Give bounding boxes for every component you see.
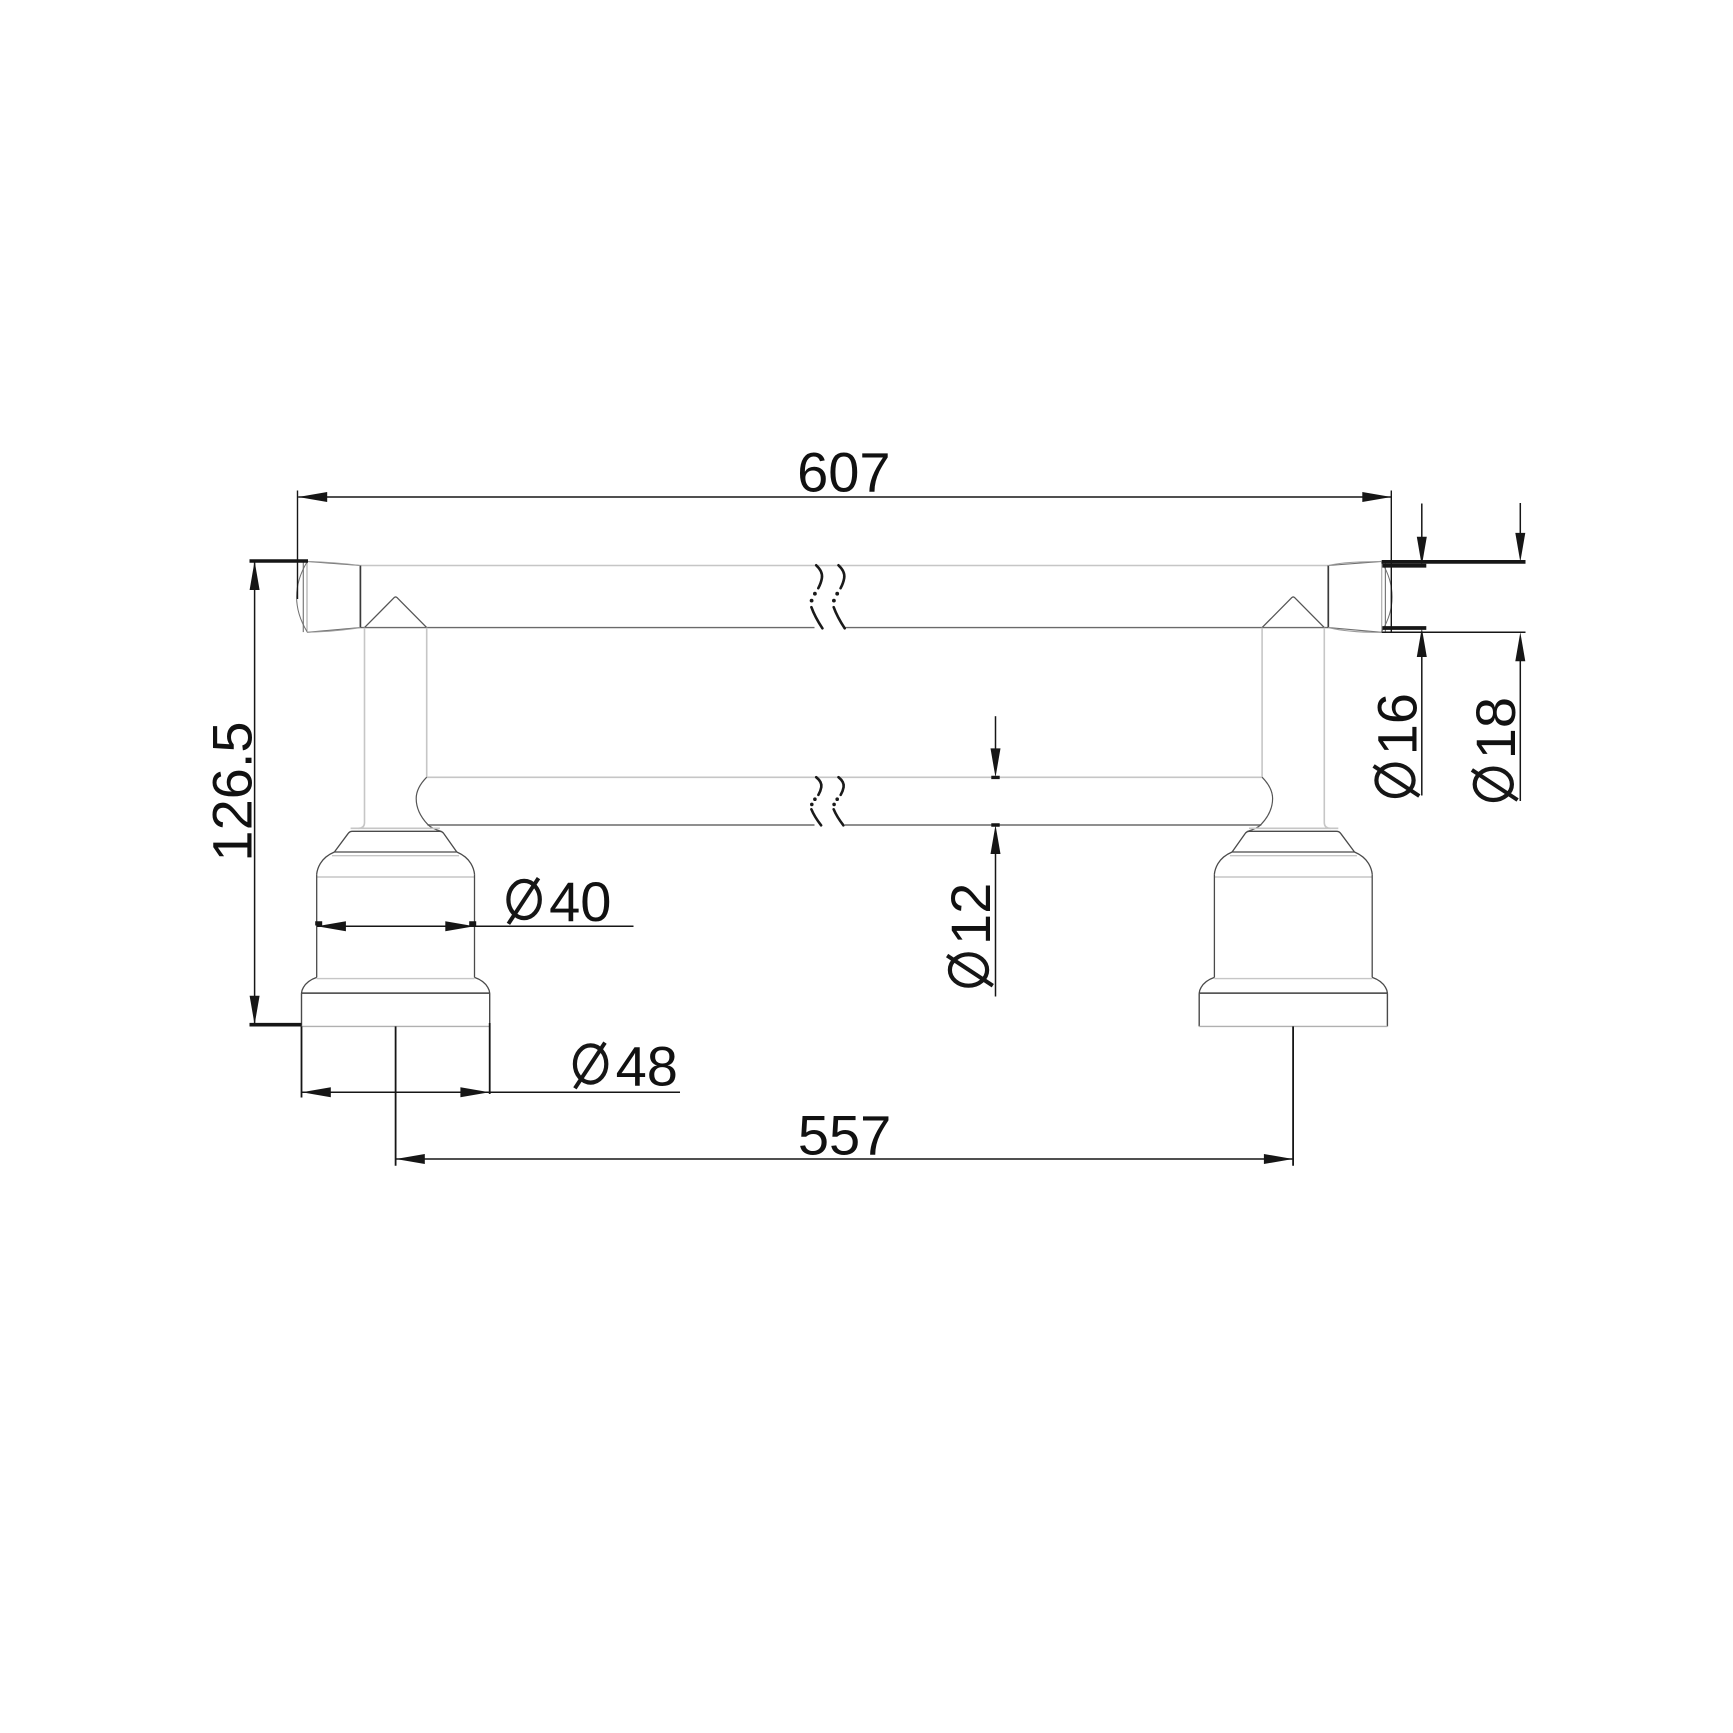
svg-text:18: 18 bbox=[1464, 697, 1527, 759]
svg-text:557: 557 bbox=[798, 1104, 891, 1167]
svg-text:16: 16 bbox=[1366, 693, 1429, 755]
svg-text:12: 12 bbox=[939, 883, 1002, 945]
svg-text:607: 607 bbox=[797, 441, 890, 504]
svg-text:40: 40 bbox=[549, 870, 611, 933]
svg-text:126.5: 126.5 bbox=[201, 721, 264, 861]
svg-text:48: 48 bbox=[616, 1035, 678, 1098]
